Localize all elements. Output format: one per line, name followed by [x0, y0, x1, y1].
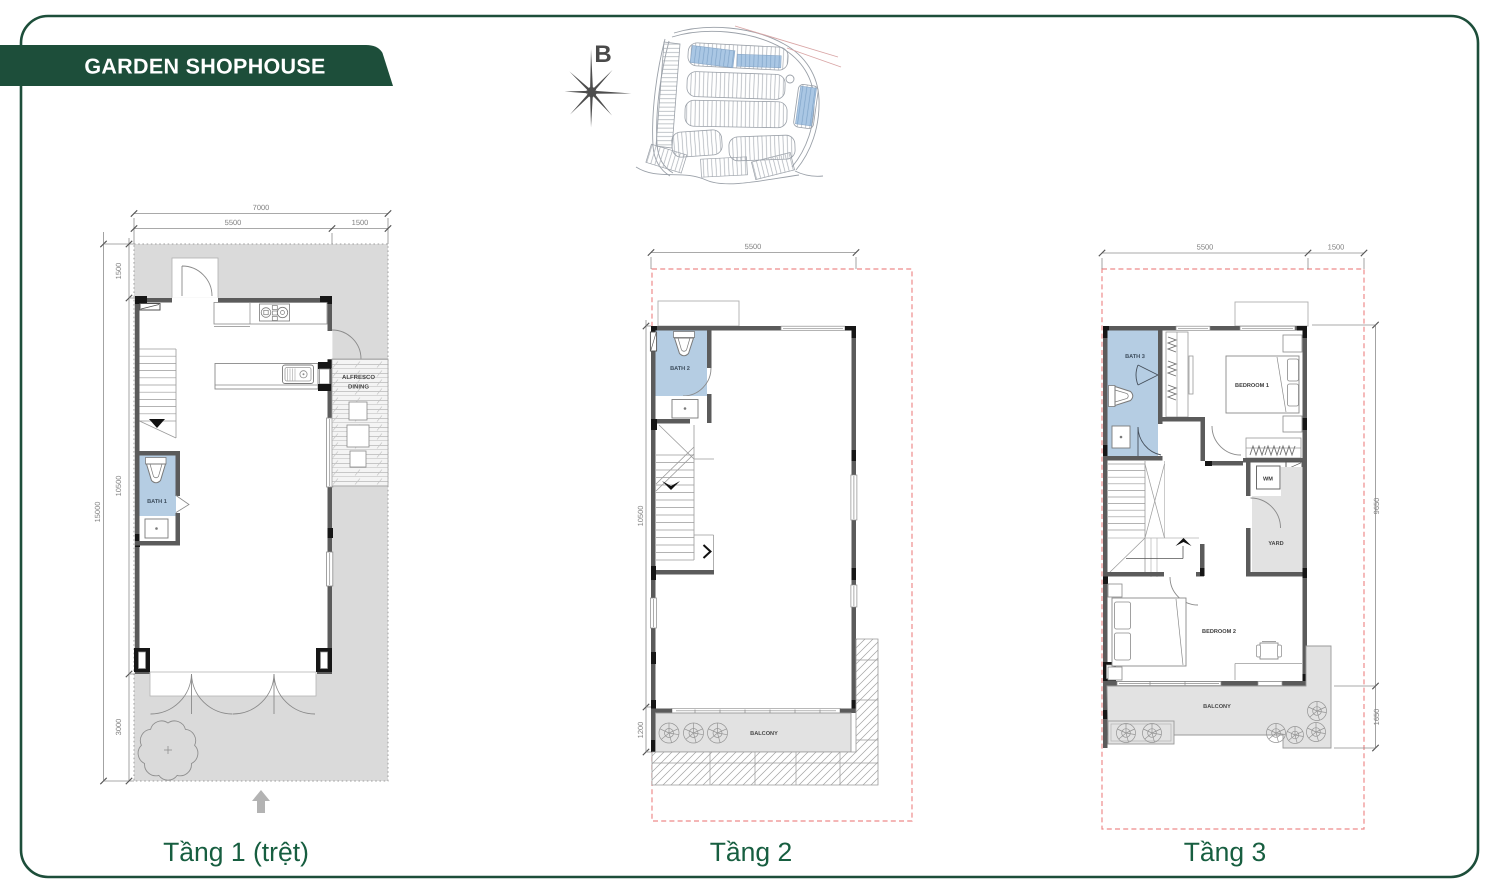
svg-text:BALCONY: BALCONY — [750, 731, 778, 737]
svg-text:BEDROOM 2: BEDROOM 2 — [1202, 629, 1236, 635]
svg-text:1500: 1500 — [114, 263, 123, 280]
svg-text:5500: 5500 — [745, 242, 762, 251]
svg-text:15000: 15000 — [93, 502, 102, 523]
svg-text:1500: 1500 — [352, 218, 369, 227]
svg-text:10500: 10500 — [114, 476, 123, 497]
svg-text:BATH 3: BATH 3 — [1125, 354, 1145, 360]
svg-text:BATH 2: BATH 2 — [670, 366, 690, 372]
svg-text:Tầng 1 (trệt): Tầng 1 (trệt) — [163, 837, 309, 867]
svg-text:BATH 1: BATH 1 — [147, 499, 167, 505]
svg-text:GARDEN SHOPHOUSE: GARDEN SHOPHOUSE — [84, 55, 325, 79]
svg-text:DINING: DINING — [348, 384, 369, 391]
svg-text:B: B — [594, 41, 611, 68]
svg-text:BALCONY: BALCONY — [1203, 704, 1231, 710]
svg-text:YARD: YARD — [1268, 541, 1283, 547]
svg-text:BEDROOM 1: BEDROOM 1 — [1235, 383, 1269, 389]
svg-text:Tầng 2: Tầng 2 — [710, 837, 793, 867]
svg-text:5500: 5500 — [225, 218, 242, 227]
svg-text:3000: 3000 — [114, 719, 123, 736]
svg-text:Tầng 3: Tầng 3 — [1184, 837, 1267, 867]
svg-text:1500: 1500 — [1328, 243, 1345, 252]
svg-text:9650: 9650 — [1372, 498, 1381, 515]
svg-text:WM: WM — [1263, 477, 1273, 483]
svg-text:5500: 5500 — [1197, 243, 1214, 252]
svg-text:1200: 1200 — [636, 722, 645, 739]
svg-text:ALFRESCO: ALFRESCO — [342, 374, 375, 381]
svg-text:1650: 1650 — [1372, 709, 1381, 726]
svg-text:10500: 10500 — [636, 506, 645, 527]
svg-text:7000: 7000 — [253, 203, 270, 212]
